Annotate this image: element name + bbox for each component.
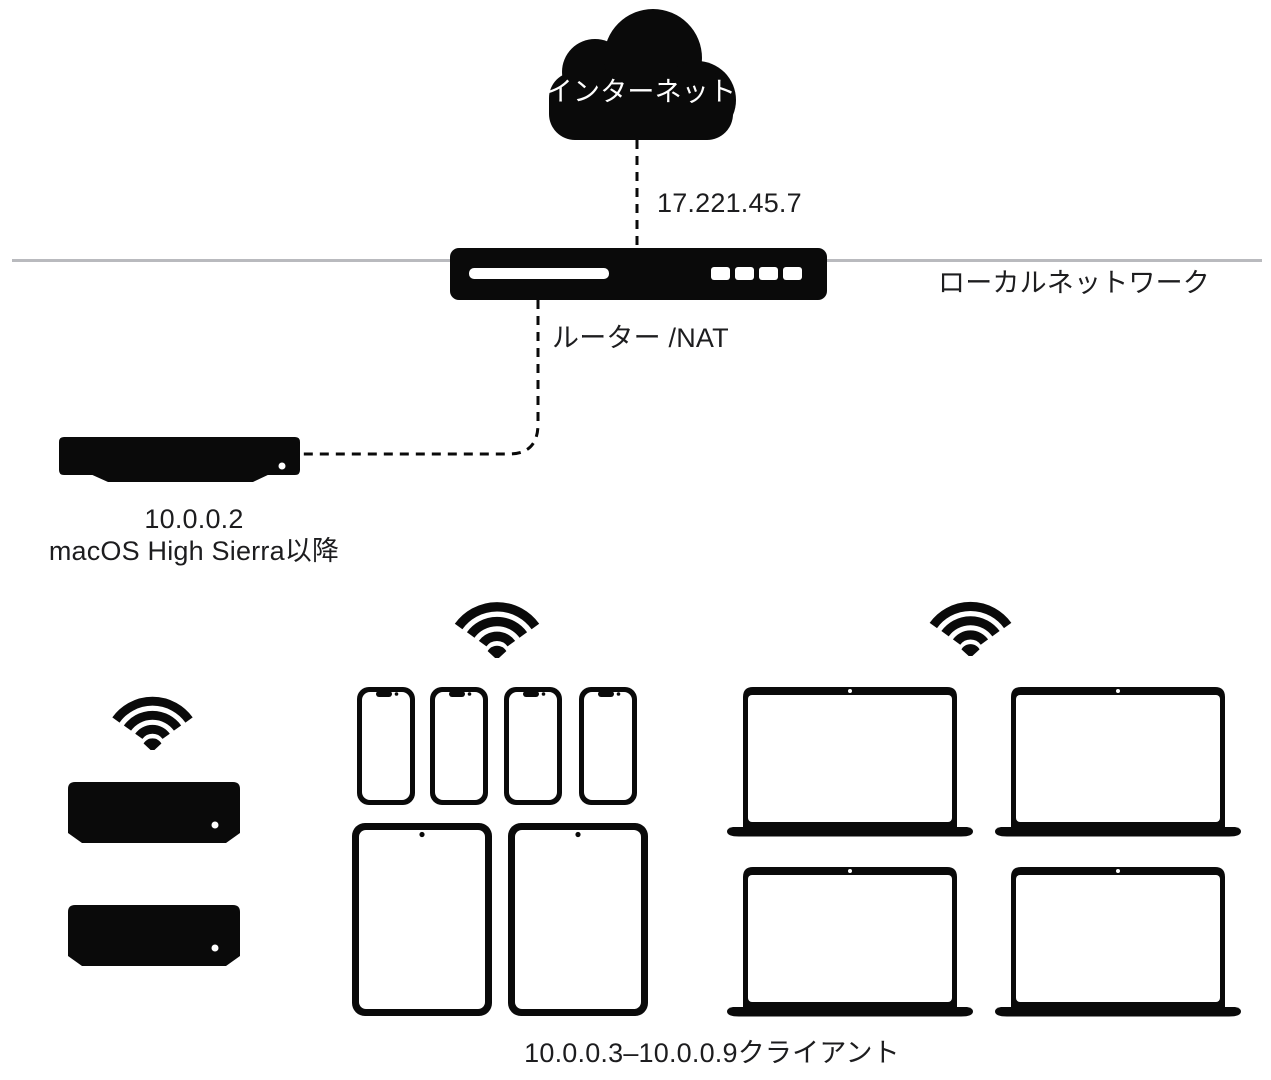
iphone-icon [579,687,637,805]
local-network-label: ローカルネットワーク [938,267,1210,299]
router-port-light [735,267,754,280]
mac-mini-icon [59,437,300,483]
wifi-icon [454,595,540,658]
router-front-slot [469,268,609,279]
iphone-icon [504,687,562,805]
ipad-icon [352,823,492,1016]
macbook-icon [995,867,1241,1017]
server-ip-label: 10.0.0.2 [29,503,359,535]
apple-tv-icon [68,905,240,967]
iphone-icon [430,687,488,805]
router-port-light [783,267,802,280]
server-os-label: macOS High Sierra以降 [29,535,359,567]
clients-range-label: 10.0.0.3–10.0.0.9クライアント [427,1037,997,1069]
ipad-icon [508,823,648,1016]
router-port-light [711,267,730,280]
router-port-light [759,267,778,280]
macbook-icon [727,687,973,837]
internet-label: インターネット [545,76,737,108]
macbook-icon [995,687,1241,837]
router-device-icon [450,248,827,300]
server-labels: 10.0.0.2 macOS High Sierra以降 [29,503,359,568]
network-diagram-canvas: インターネット 17.221.45.7 ローカルネットワーク ルーター /NAT… [0,0,1271,1080]
iphone-icon [357,687,415,805]
wan-ip-label: 17.221.45.7 [657,187,802,219]
wifi-icon [112,690,193,750]
apple-tv-icon [68,782,240,844]
cloud-icon [545,8,737,142]
macbook-icon [727,867,973,1017]
wifi-icon [929,595,1012,656]
server-link-line [303,300,538,454]
router-label: ルーター /NAT [552,322,729,354]
